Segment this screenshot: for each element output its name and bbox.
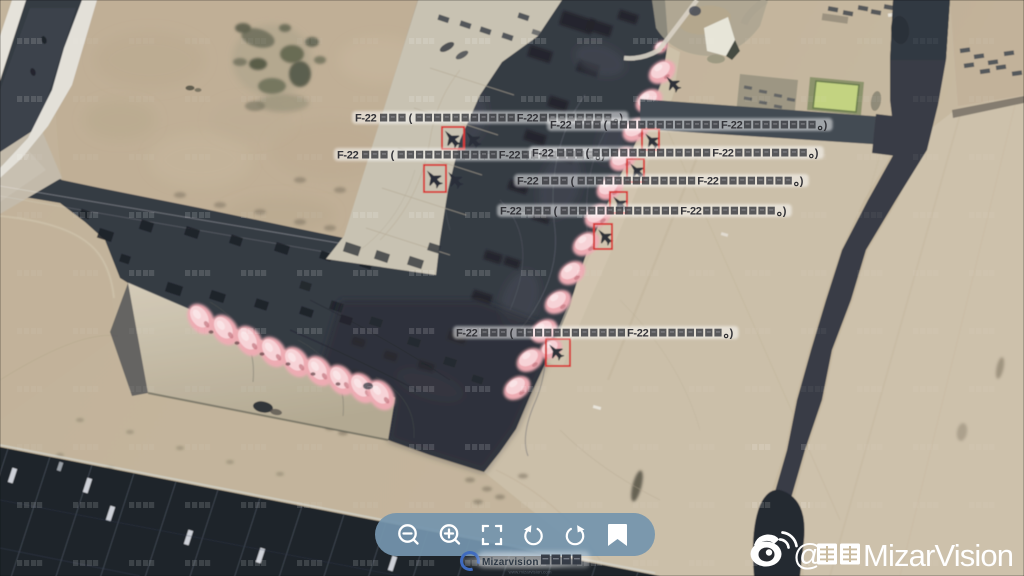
svg-text:F-22: F-22 bbox=[355, 113, 377, 125]
svg-text:www.mizarvision.com: www.mizarvision.com bbox=[508, 570, 551, 575]
svg-text:(: ( bbox=[409, 113, 413, 125]
svg-text:F-22: F-22 bbox=[712, 148, 734, 160]
svg-text:): ) bbox=[815, 148, 819, 160]
svg-text:): ) bbox=[800, 176, 804, 188]
svg-text:F-22: F-22 bbox=[499, 150, 521, 162]
svg-text:Mizarvision: Mizarvision bbox=[482, 557, 539, 568]
svg-text:): ) bbox=[730, 328, 734, 340]
svg-text:MizarVision: MizarVision bbox=[863, 538, 1014, 573]
svg-text:F-22: F-22 bbox=[337, 150, 359, 162]
svg-text:(: ( bbox=[391, 150, 395, 162]
svg-text:): ) bbox=[824, 120, 828, 132]
svg-text:F-22: F-22 bbox=[627, 328, 649, 340]
svg-text:(: ( bbox=[604, 120, 608, 132]
svg-text:F-22: F-22 bbox=[697, 176, 719, 188]
svg-text:F-22: F-22 bbox=[680, 206, 702, 218]
svg-text:(: ( bbox=[510, 328, 514, 340]
svg-text:(: ( bbox=[586, 148, 590, 160]
svg-text:F-22: F-22 bbox=[532, 148, 554, 160]
svg-text:F-22: F-22 bbox=[500, 206, 522, 218]
svg-text:(: ( bbox=[554, 206, 558, 218]
svg-text:): ) bbox=[783, 206, 787, 218]
svg-text:F-22: F-22 bbox=[456, 328, 478, 340]
svg-text:(: ( bbox=[571, 176, 575, 188]
svg-text:F-22: F-22 bbox=[721, 120, 743, 132]
svg-text:F-22: F-22 bbox=[517, 113, 539, 125]
svg-text:F-22: F-22 bbox=[550, 120, 572, 132]
svg-text:F-22: F-22 bbox=[517, 176, 539, 188]
